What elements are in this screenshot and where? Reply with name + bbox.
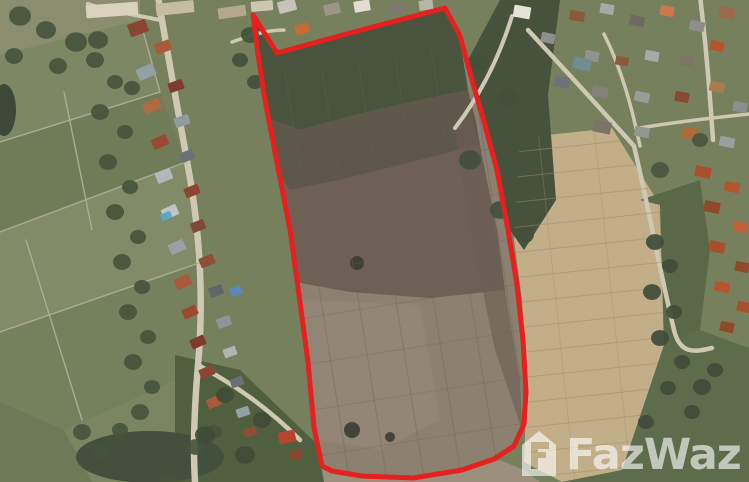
tree bbox=[93, 444, 111, 460]
tree bbox=[131, 404, 149, 420]
tree bbox=[216, 387, 234, 403]
tree bbox=[119, 304, 137, 320]
tree bbox=[662, 259, 678, 273]
tree bbox=[117, 125, 133, 139]
tree bbox=[253, 412, 271, 428]
tree bbox=[140, 330, 156, 344]
tree bbox=[666, 305, 682, 319]
listing-map-image[interactable]: FazWaz bbox=[0, 0, 749, 482]
tree bbox=[638, 415, 654, 429]
tree bbox=[49, 58, 67, 74]
tree bbox=[113, 254, 131, 270]
tree bbox=[232, 53, 248, 67]
house-roof bbox=[251, 0, 274, 12]
tree bbox=[195, 426, 215, 444]
tree bbox=[674, 355, 690, 369]
tree bbox=[86, 52, 104, 68]
tree bbox=[459, 150, 481, 169]
tree bbox=[5, 48, 23, 64]
tree bbox=[124, 354, 142, 370]
tree bbox=[107, 75, 123, 89]
tree bbox=[498, 89, 518, 107]
satellite-map[interactable]: FazWaz bbox=[0, 0, 749, 482]
tree bbox=[112, 423, 128, 437]
plot-tree bbox=[344, 422, 360, 438]
tree bbox=[651, 162, 669, 178]
tree bbox=[660, 381, 676, 395]
tree bbox=[144, 380, 160, 394]
tree bbox=[122, 180, 138, 194]
tree bbox=[91, 104, 109, 120]
tree bbox=[9, 6, 31, 25]
watermark-text: FazWaz bbox=[566, 430, 741, 480]
tree bbox=[130, 230, 146, 244]
tree bbox=[643, 284, 661, 300]
tree bbox=[36, 21, 56, 39]
tree bbox=[646, 234, 664, 250]
tree bbox=[693, 379, 711, 395]
tree bbox=[65, 32, 87, 51]
tree bbox=[692, 133, 708, 147]
tree bbox=[235, 446, 255, 464]
tree bbox=[124, 81, 140, 95]
tree bbox=[73, 424, 91, 440]
tree bbox=[88, 31, 108, 49]
tree bbox=[99, 154, 117, 170]
plot-tree bbox=[385, 432, 395, 442]
tree bbox=[684, 405, 700, 419]
tree bbox=[707, 363, 723, 377]
tree bbox=[651, 330, 669, 346]
tree bbox=[106, 204, 124, 220]
tree bbox=[134, 280, 150, 294]
tree bbox=[516, 227, 534, 243]
